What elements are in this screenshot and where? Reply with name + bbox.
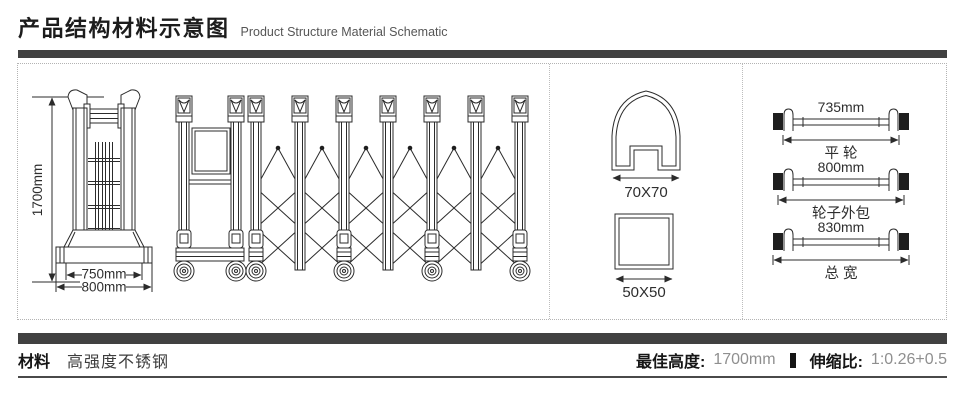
divider-bar-top (18, 50, 947, 58)
divider-bar-bottom (18, 333, 947, 344)
spec-footer: 材料 高强度不锈钢 最佳高度: 1700mm 伸缩比: 1:0.26+0.5 (18, 347, 947, 373)
material-spec: 材料 高强度不锈钢 (18, 348, 169, 372)
axle-dim-value-0: 735mm (818, 99, 865, 115)
gate-outer-width-dim-label: 800mm (81, 280, 126, 295)
page-subtitle: Product Structure Material Schematic (241, 25, 448, 39)
page-header: 产品结构材料示意图 Product Structure Material Sch… (18, 11, 448, 43)
post-profile-square (615, 214, 673, 279)
axle-dim-name-2: 总 宽 (824, 265, 857, 282)
side-view (174, 96, 530, 281)
best-height-label: 最佳高度: (636, 348, 705, 372)
profiles-drawing: 70X70 50X50 (550, 64, 743, 319)
material-value: 高强度不锈钢 (67, 348, 169, 372)
schematic-panel: 1700mm 750mm 800mm (17, 63, 947, 320)
gate-drawing: 1700mm 750mm 800mm (18, 64, 549, 319)
axles-drawing: 735mm 平 轮 800mm 轮子外包 830mm 总 宽 (743, 64, 947, 319)
gate-views-panel: 1700mm 750mm 800mm (18, 64, 550, 319)
material-label: 材料 (18, 348, 50, 372)
axle-dim-value-1: 800mm (818, 159, 865, 175)
footer-rule (18, 376, 947, 378)
dimension-specs: 最佳高度: 1700mm 伸缩比: 1:0.26+0.5 (636, 348, 947, 372)
post-section-label: 50X50 (622, 284, 665, 301)
rail-profile-arch (612, 91, 680, 178)
best-height-value: 1700mm (713, 351, 775, 369)
page-title: 产品结构材料示意图 (18, 11, 230, 43)
front-view (32, 90, 152, 294)
gate-height-dim-label: 1700mm (30, 164, 45, 217)
rail-section-label: 70X70 (624, 184, 667, 201)
axle-dim-value-2: 830mm (818, 219, 865, 235)
axles-panel: 735mm 平 轮 800mm 轮子外包 830mm 总 宽 (743, 64, 947, 319)
profiles-panel: 70X70 50X50 (550, 64, 743, 319)
separator-bar-icon (790, 353, 796, 368)
ratio-label: 伸缩比: (810, 348, 863, 372)
ratio-value: 1:0.26+0.5 (871, 351, 947, 369)
